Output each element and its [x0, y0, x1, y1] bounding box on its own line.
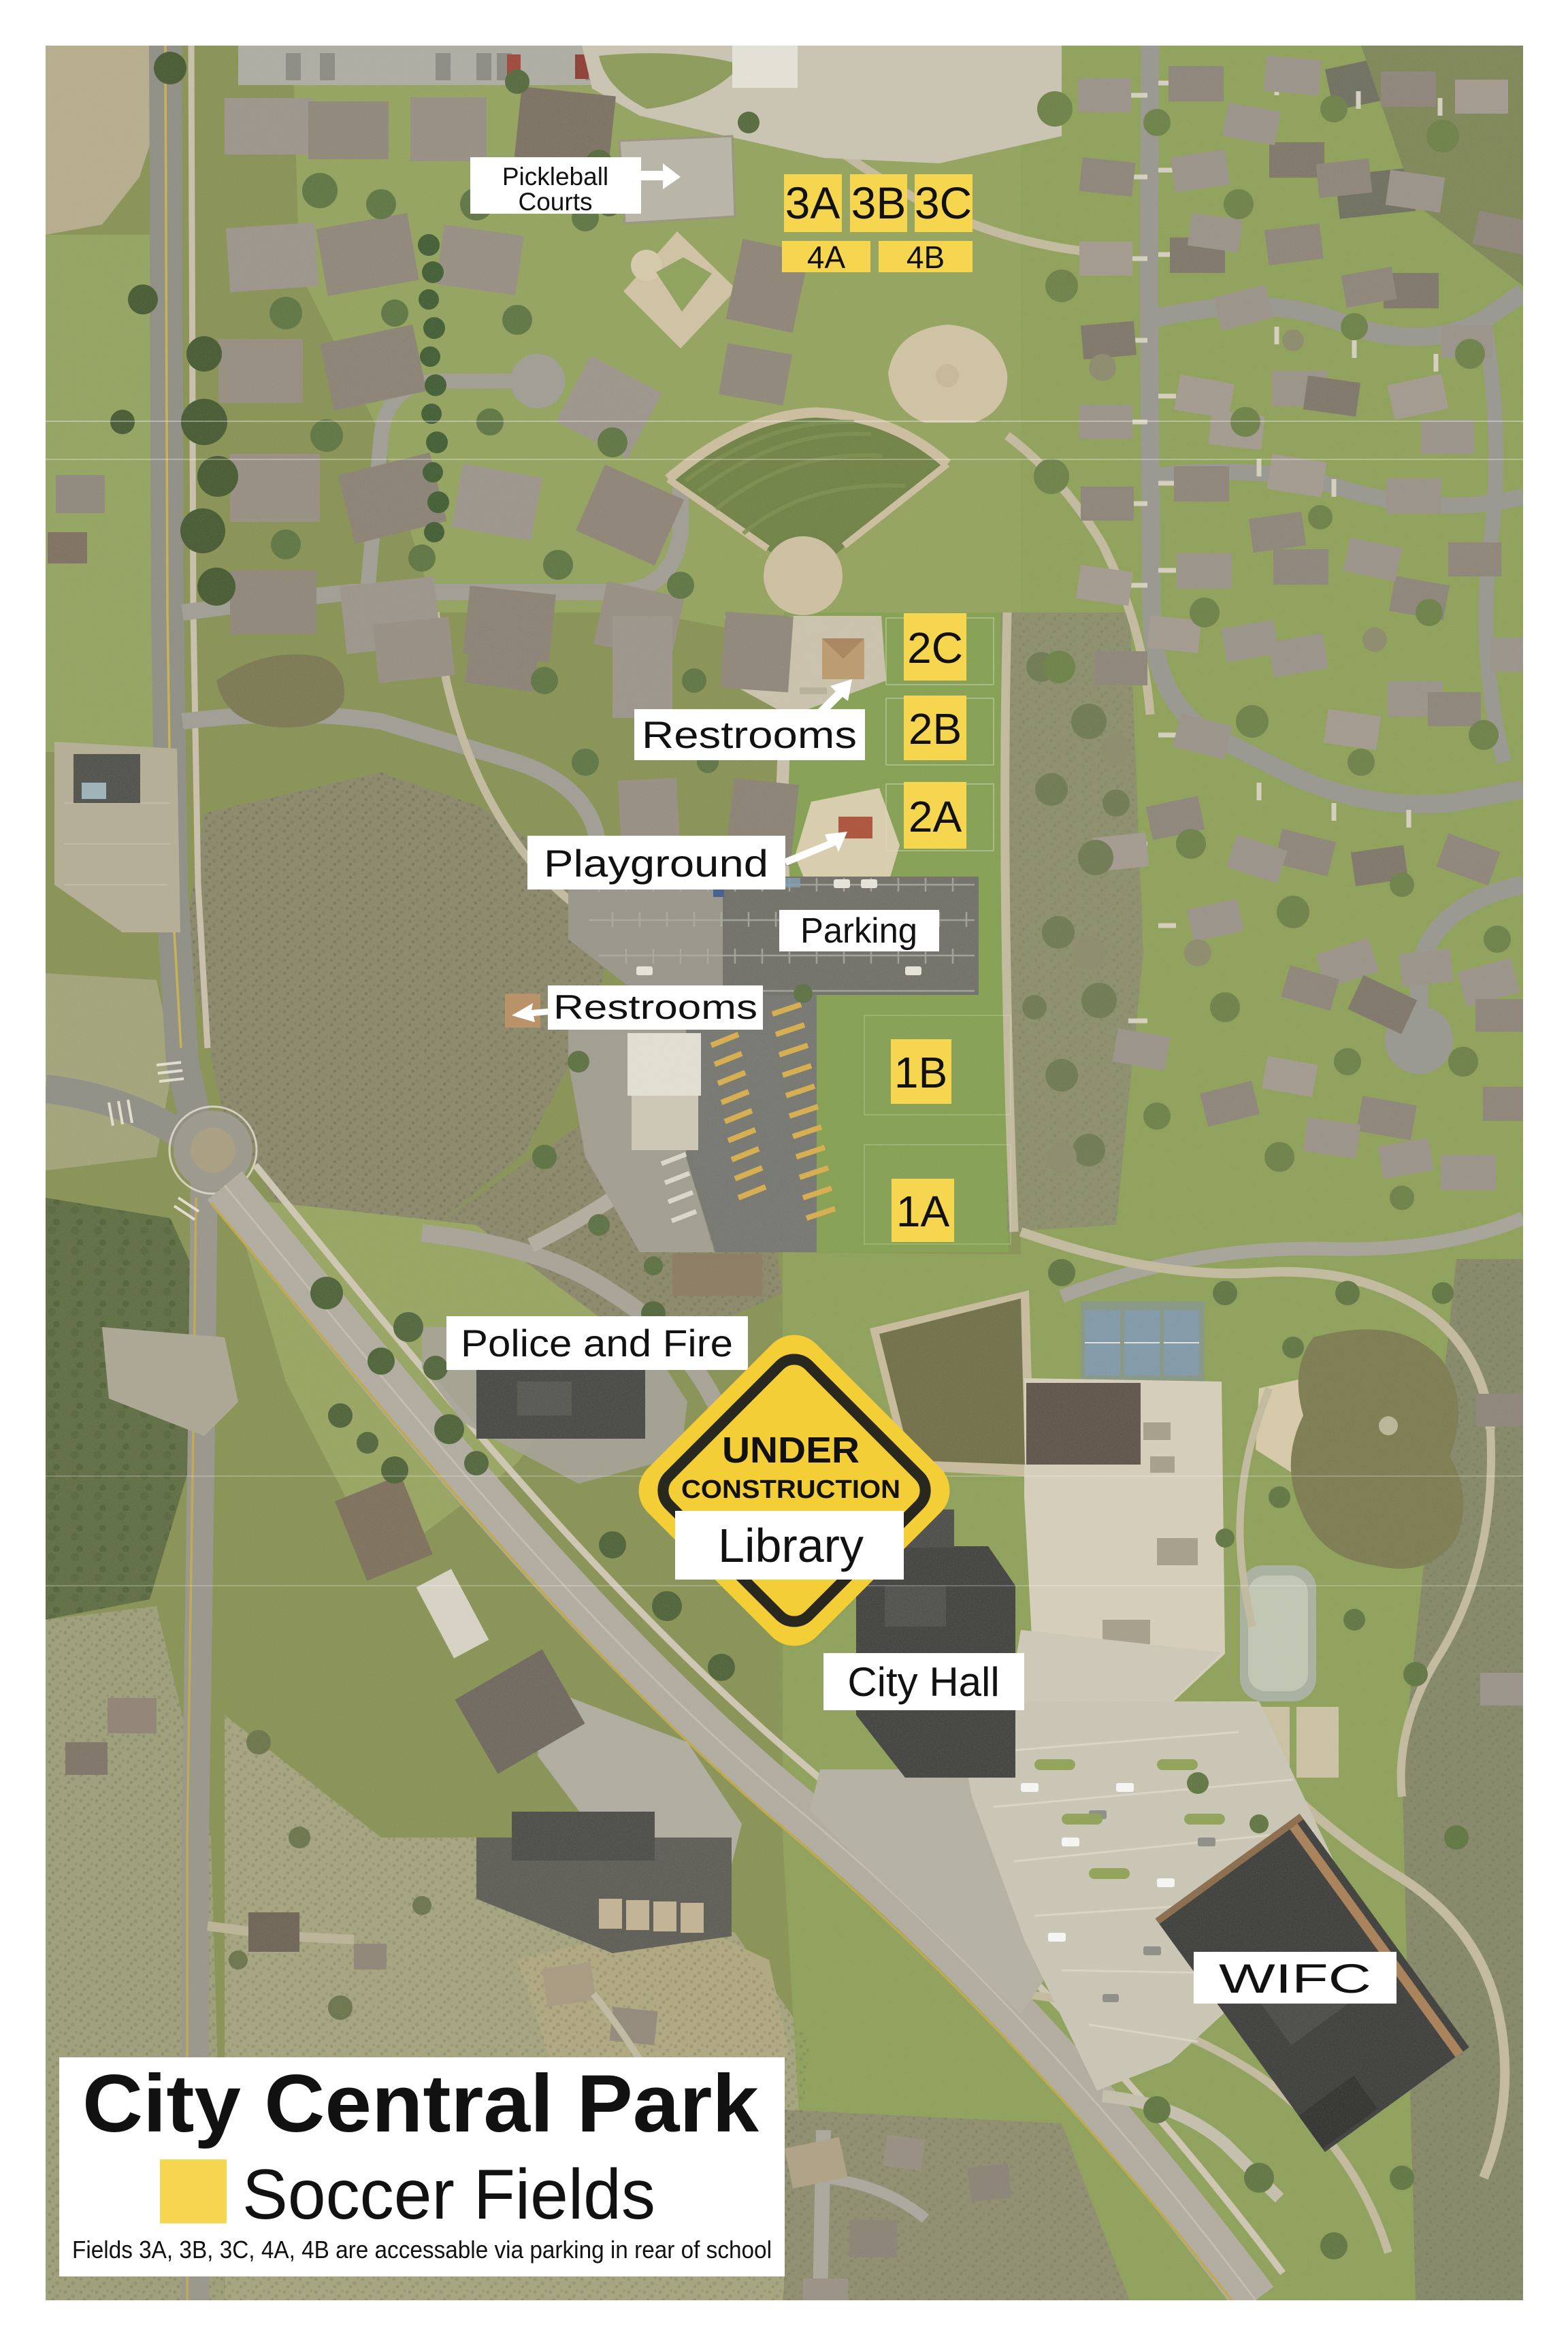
svg-text:4B: 4B — [906, 240, 945, 275]
svg-text:2C: 2C — [907, 623, 963, 672]
svg-text:2A: 2A — [909, 792, 962, 841]
svg-text:3A: 3A — [785, 178, 840, 228]
svg-text:Police and Fire: Police and Fire — [461, 1322, 733, 1365]
svg-text:Pickleball: Pickleball — [502, 163, 608, 191]
svg-text:CONSTRUCTION: CONSTRUCTION — [681, 1475, 900, 1504]
svg-text:Restrooms: Restrooms — [642, 713, 857, 756]
svg-text:1B: 1B — [894, 1048, 947, 1097]
svg-text:Courts: Courts — [519, 188, 593, 216]
svg-text:Library: Library — [718, 1519, 864, 1572]
svg-text:3C: 3C — [915, 178, 972, 228]
svg-text:WIFC: WIFC — [1219, 1956, 1371, 2002]
svg-text:1A: 1A — [896, 1187, 950, 1236]
svg-text:City Hall: City Hall — [847, 1659, 999, 1705]
svg-text:4A: 4A — [807, 240, 846, 275]
svg-text:Restrooms: Restrooms — [553, 988, 757, 1026]
svg-text:UNDER: UNDER — [722, 1430, 860, 1471]
svg-text:Playground: Playground — [544, 842, 768, 885]
svg-text:Soccer Fields: Soccer Fields — [242, 2155, 655, 2234]
svg-text:Parking: Parking — [800, 911, 917, 951]
svg-text:3B: 3B — [851, 178, 906, 228]
svg-text:2B: 2B — [909, 704, 962, 753]
svg-text:City Central Park: City Central Park — [82, 2058, 759, 2149]
svg-text:Fields 3A, 3B, 3C, 4A, 4B are: Fields 3A, 3B, 3C, 4A, 4B are accessable… — [72, 2236, 772, 2264]
